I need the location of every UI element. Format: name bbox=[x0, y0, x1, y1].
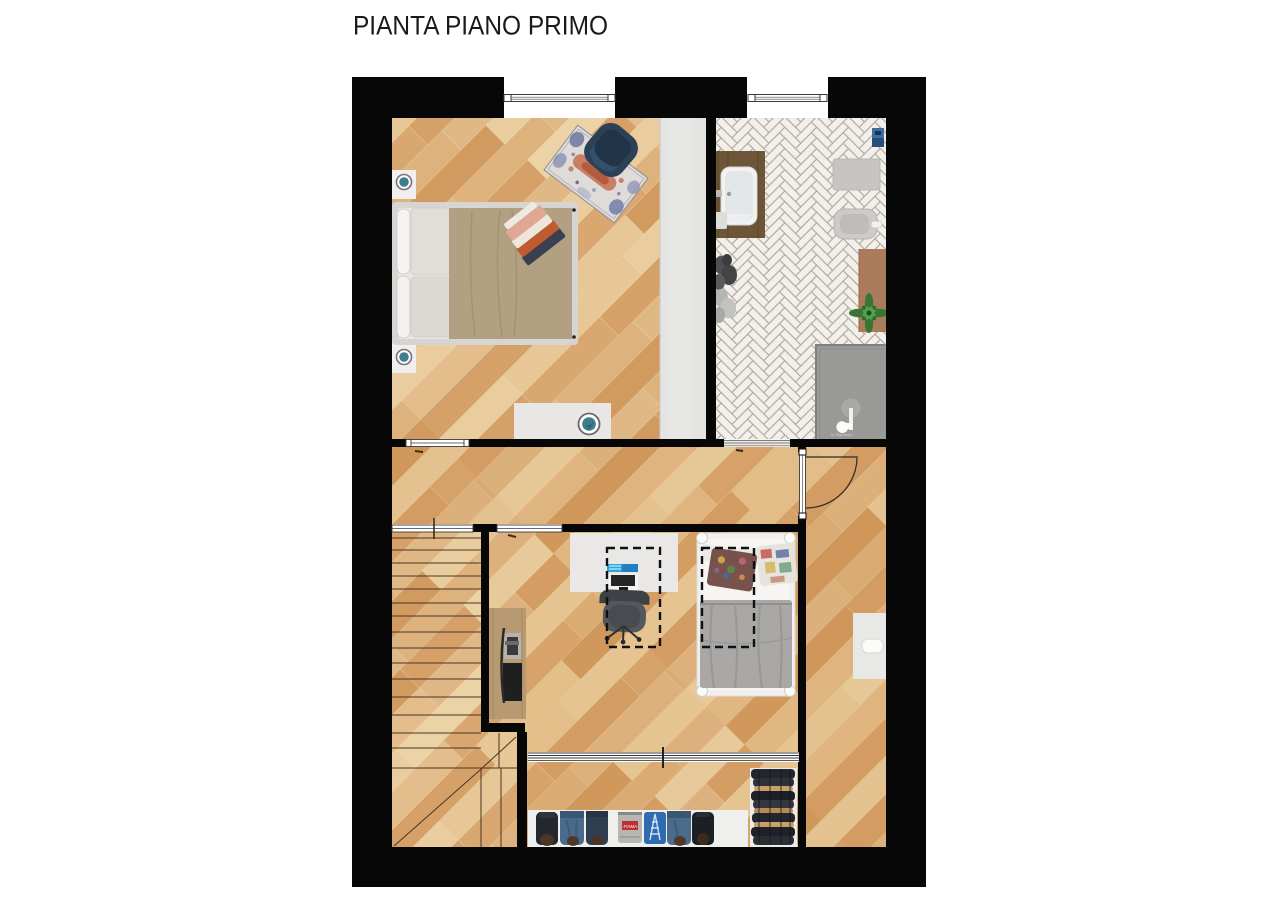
svg-text:PIANTA PIANO PRIMO: PIANTA PIANO PRIMO bbox=[353, 11, 608, 41]
svg-text:FIAMA: FIAMA bbox=[624, 824, 638, 829]
svg-text:In Signature: In Signature bbox=[831, 432, 853, 437]
